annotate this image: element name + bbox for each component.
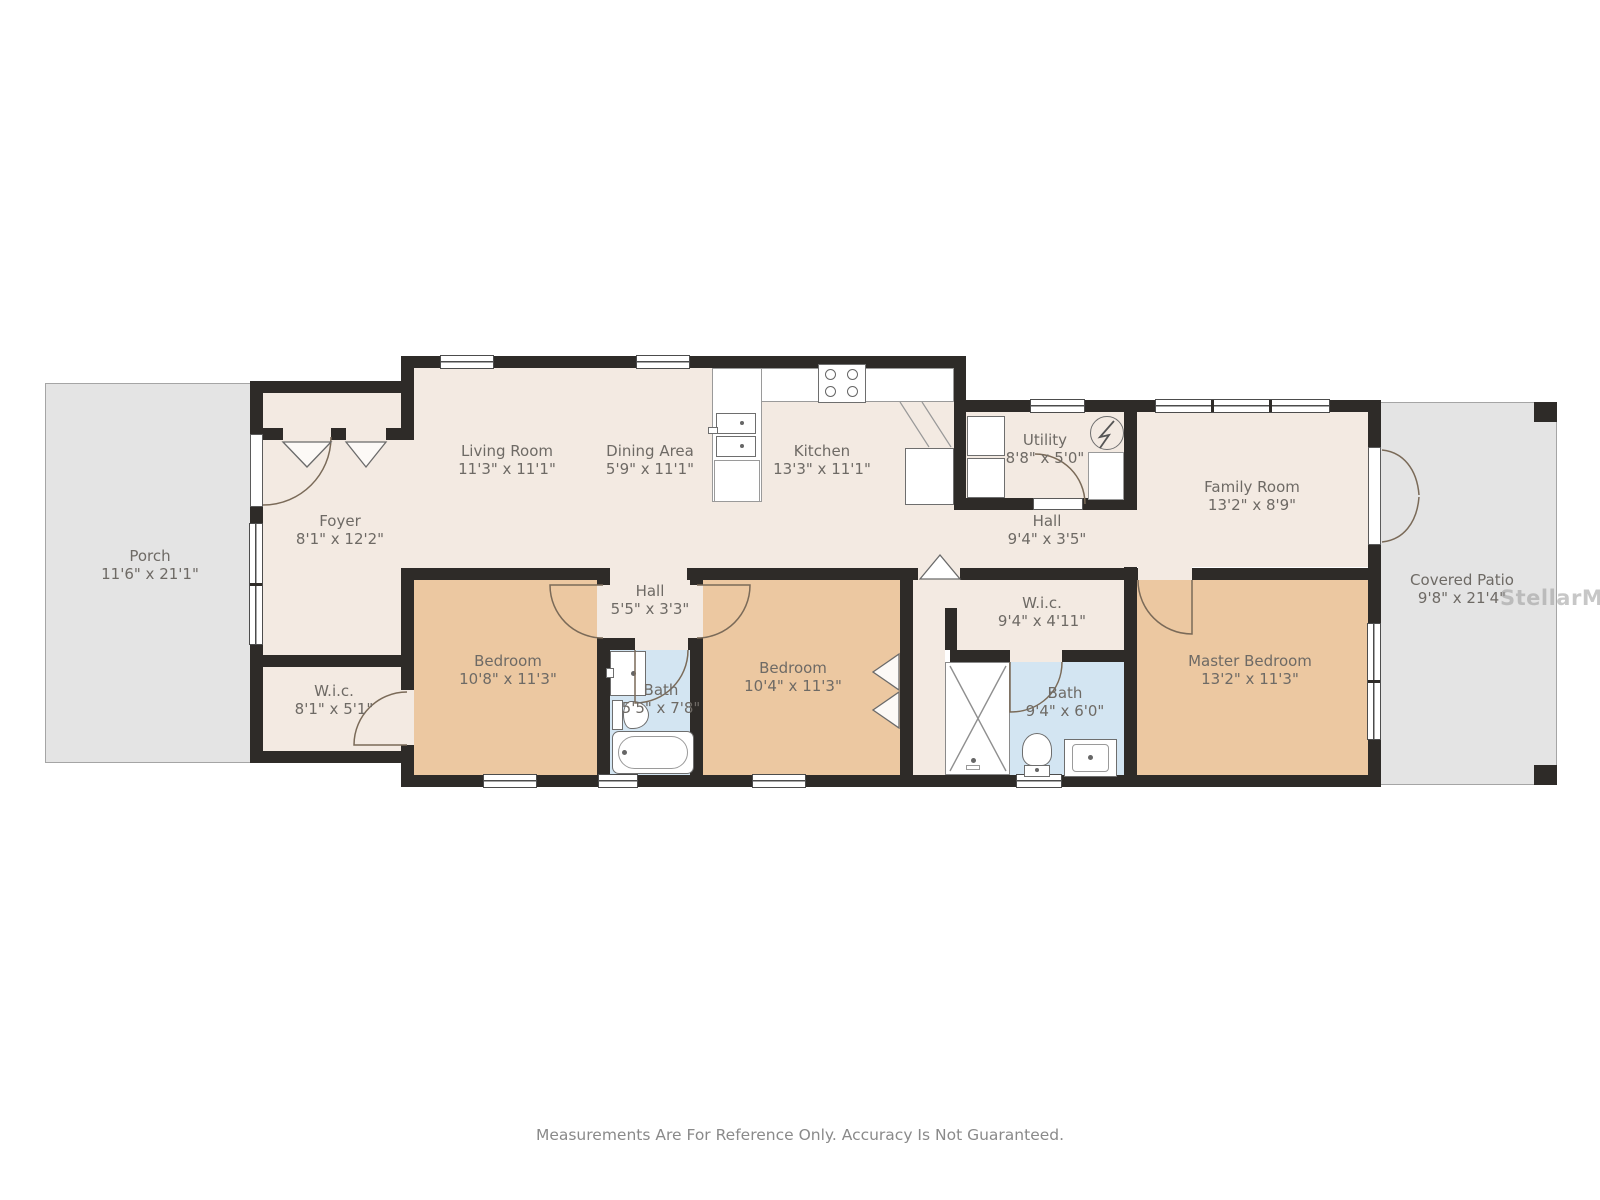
room-label-bath1: Bath 5'5" x 7'8" bbox=[622, 681, 701, 717]
room-label-hall2: Hall 5'5" x 3'3" bbox=[611, 582, 690, 618]
foyer-closet-bifold-2 bbox=[346, 442, 386, 467]
room-name: Kitchen bbox=[773, 442, 871, 460]
room-name: W.i.c. bbox=[998, 594, 1086, 612]
room-label-living: Living Room 11'3" x 11'1" bbox=[458, 442, 556, 478]
room-label-utility: Utility 8'8" x 5'0" bbox=[1006, 431, 1085, 467]
bedroom2-door-arc bbox=[697, 585, 750, 638]
room-dims: 8'1" x 5'1" bbox=[295, 700, 374, 718]
water-heater-bolt bbox=[1100, 421, 1114, 448]
room-dims: 13'2" x 11'3" bbox=[1188, 670, 1312, 688]
room-label-dining: Dining Area 5'9" x 11'1" bbox=[606, 442, 694, 478]
room-name: Living Room bbox=[458, 442, 556, 460]
room-label-wic-master: W.i.c. 9'4" x 4'11" bbox=[998, 594, 1086, 630]
watermark: StellarMLS bbox=[1500, 586, 1600, 610]
master-door-arc bbox=[1138, 580, 1192, 634]
room-name: Porch bbox=[101, 547, 199, 565]
room-dims: 13'3" x 11'1" bbox=[773, 460, 871, 478]
room-label-porch: Porch 11'6" x 21'1" bbox=[101, 547, 199, 583]
foyer-closet-bifold-1 bbox=[283, 442, 331, 467]
room-dims: 8'1" x 12'2" bbox=[296, 530, 384, 548]
room-dims: 5'5" x 7'8" bbox=[622, 699, 701, 717]
room-dims: 10'4" x 11'3" bbox=[744, 677, 842, 695]
room-label-wic-left: W.i.c. 8'1" x 5'1" bbox=[295, 682, 374, 718]
room-name: Dining Area bbox=[606, 442, 694, 460]
room-dims: 9'4" x 3'5" bbox=[1008, 530, 1087, 548]
room-label-hall: Hall 9'4" x 3'5" bbox=[1008, 512, 1087, 548]
kitchen-counter-corner bbox=[900, 402, 951, 447]
room-name: Bedroom bbox=[459, 652, 557, 670]
room-label-patio: Covered Patio 9'8" x 21'4" bbox=[1410, 571, 1514, 607]
room-label-bedroom2: Bedroom 10'4" x 11'3" bbox=[744, 659, 842, 695]
room-label-bedroom1: Bedroom 10'8" x 11'3" bbox=[459, 652, 557, 688]
room-name: W.i.c. bbox=[295, 682, 374, 700]
floorplan-page: { "page": { "watermark": "StellarMLS", "… bbox=[0, 0, 1600, 1200]
room-dims: 9'8" x 21'4" bbox=[1410, 589, 1514, 607]
room-name: Foyer bbox=[296, 512, 384, 530]
room-name: Bedroom bbox=[744, 659, 842, 677]
room-name: Master Bedroom bbox=[1188, 652, 1312, 670]
room-name: Hall bbox=[611, 582, 690, 600]
room-dims: 11'6" x 21'1" bbox=[101, 565, 199, 583]
hall-corridor-opening-marker bbox=[920, 555, 960, 579]
room-dims: 9'4" x 6'0" bbox=[1026, 702, 1105, 720]
symbols-overlay bbox=[0, 0, 1600, 1200]
room-name: Hall bbox=[1008, 512, 1087, 530]
room-label-kitchen: Kitchen 13'3" x 11'1" bbox=[773, 442, 871, 478]
room-name: Bath bbox=[1026, 684, 1105, 702]
room-name: Covered Patio bbox=[1410, 571, 1514, 589]
bedroom2-closet-bifold-1 bbox=[873, 654, 899, 690]
room-dims: 9'4" x 4'11" bbox=[998, 612, 1086, 630]
room-dims: 10'8" x 11'3" bbox=[459, 670, 557, 688]
room-dims: 8'8" x 5'0" bbox=[1006, 449, 1085, 467]
room-label-foyer: Foyer 8'1" x 12'2" bbox=[296, 512, 384, 548]
room-label-master: Master Bedroom 13'2" x 11'3" bbox=[1188, 652, 1312, 688]
room-dims: 11'3" x 11'1" bbox=[458, 460, 556, 478]
room-label-family: Family Room 13'2" x 8'9" bbox=[1204, 478, 1300, 514]
room-name: Bath bbox=[622, 681, 701, 699]
patio-french-door-arc-top bbox=[1382, 450, 1419, 495]
room-name: Family Room bbox=[1204, 478, 1300, 496]
room-dims: 5'5" x 3'3" bbox=[611, 600, 690, 618]
bedroom2-closet-bifold-2 bbox=[873, 692, 899, 728]
room-label-bath2: Bath 9'4" x 6'0" bbox=[1026, 684, 1105, 720]
room-dims: 13'2" x 8'9" bbox=[1204, 496, 1300, 514]
bedroom1-door-arc bbox=[550, 585, 603, 638]
room-name: Utility bbox=[1006, 431, 1085, 449]
patio-french-door-arc-bottom bbox=[1382, 497, 1419, 542]
shower-glass-x bbox=[950, 666, 1006, 771]
room-dims: 5'9" x 11'1" bbox=[606, 460, 694, 478]
disclaimer-text: Measurements Are For Reference Only. Acc… bbox=[0, 1126, 1600, 1144]
